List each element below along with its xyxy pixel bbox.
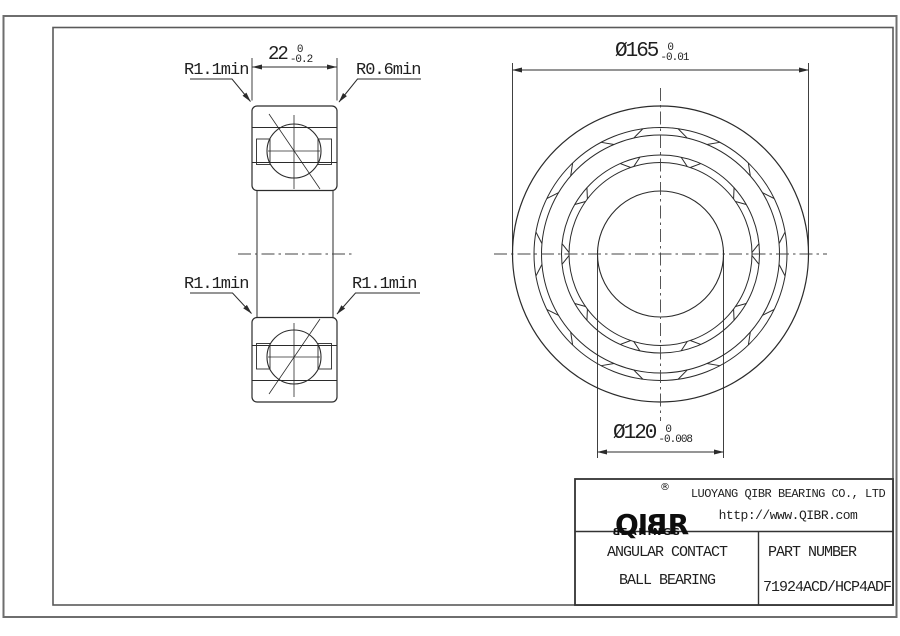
leader-top-left	[190, 79, 251, 102]
dimension-lines	[190, 58, 809, 458]
radius-label-top-right: R0.6min	[356, 61, 420, 80]
bearing-technical-drawing	[0, 0, 900, 636]
dim-width-tolerance: 0 -0.2	[287, 44, 312, 65]
part-number-value: 71924ACD/HCP4ADF	[763, 579, 891, 596]
dim-od-tol-lower: -0.01	[660, 53, 688, 63]
logo-sub-flipped-b: B	[611, 527, 620, 538]
inner-ring-hatch-top	[252, 163, 337, 191]
dim-width: 22 0 -0.2	[268, 44, 312, 65]
front-view	[494, 88, 827, 421]
radius-label-top-left: R1.1min	[184, 61, 248, 80]
dim-od-value: Ø165	[615, 42, 657, 62]
dim-bore: Ø120 0 -0.008	[613, 424, 692, 445]
leader-top-right	[339, 79, 421, 102]
registered-trademark-icon: ®	[660, 482, 670, 493]
company-name: LUOYANG QIBR BEARING CO., LTD	[686, 487, 890, 501]
company-website: http://www.QIBR.com	[686, 508, 890, 523]
logo-sub-rest: EARINGS	[621, 527, 682, 538]
inner-ring-hatch-bottom	[252, 318, 337, 346]
cross-section-view	[238, 106, 352, 402]
product-name-line1: ANGULAR CONTACT	[576, 544, 758, 561]
part-number-label: PART NUMBER	[768, 544, 856, 561]
leader-bottom-left	[190, 293, 252, 314]
radius-label-bottom-left: R1.1min	[184, 275, 248, 294]
dim-width-tol-lower: -0.2	[290, 55, 312, 65]
dim-bore-tolerance: 0 -0.008	[655, 424, 692, 445]
product-name-line2: BALL BEARING	[576, 572, 758, 589]
dim-bore-tol-lower: -0.008	[658, 435, 692, 445]
dim-od: Ø165 0 -0.01	[615, 42, 688, 63]
leader-bottom-right	[337, 293, 420, 314]
radius-label-bottom-right: R1.1min	[352, 275, 416, 294]
ball-bottom-centerlines	[268, 319, 320, 397]
dim-bore-value: Ø120	[613, 424, 655, 444]
drawing-page: 22 0 -0.2 Ø165 0 -0.01 Ø120 0 -0.008 R1.…	[0, 0, 900, 636]
dim-width-value: 22	[268, 44, 287, 64]
dim-od-tolerance: 0 -0.01	[657, 42, 688, 63]
ball-top-centerlines	[268, 114, 320, 189]
